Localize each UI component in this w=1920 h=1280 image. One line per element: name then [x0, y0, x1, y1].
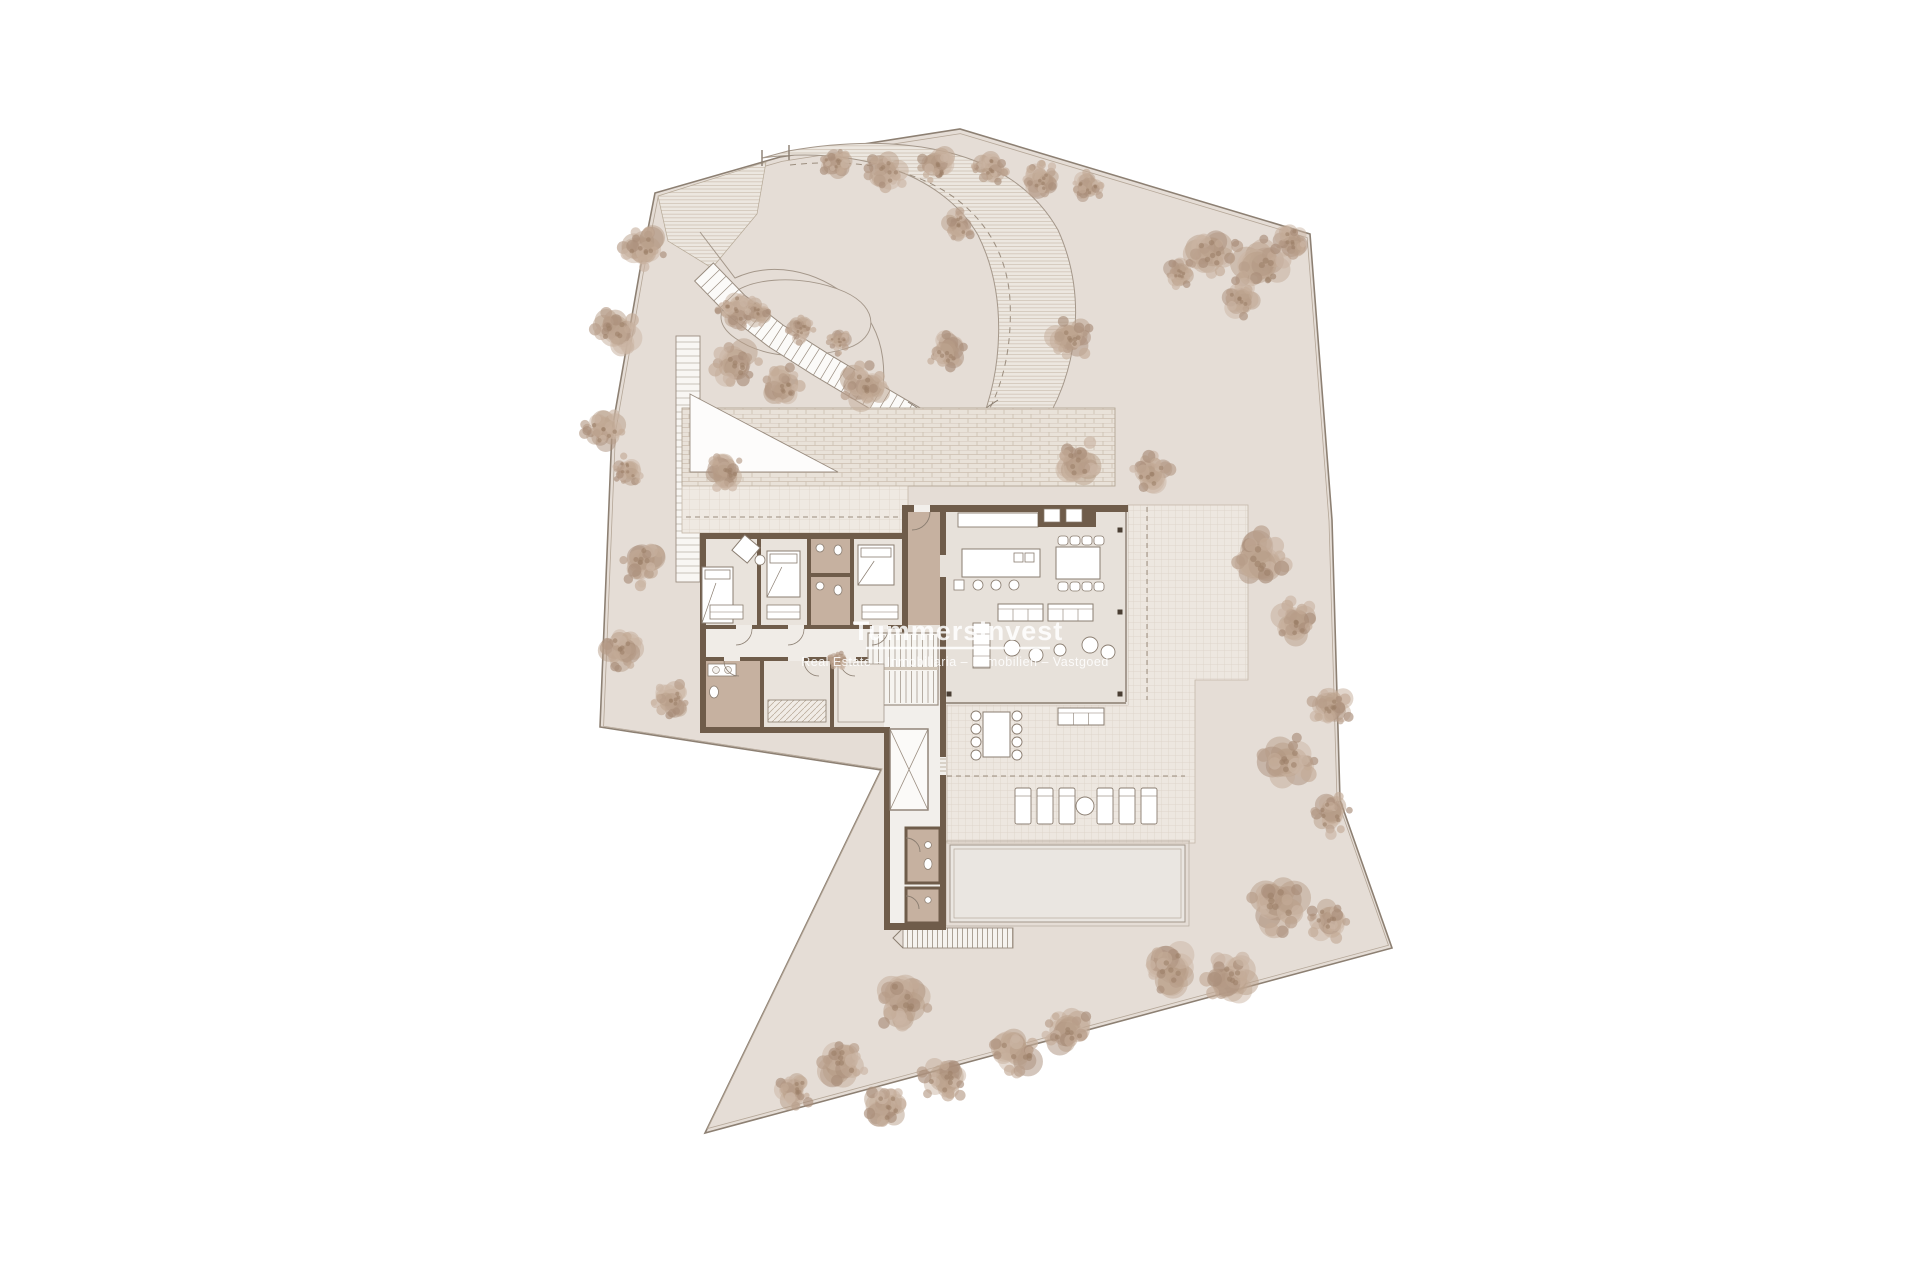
watermark-brand-text: TummersInvest — [853, 616, 1064, 646]
site-plan-page: TummersInvest Real Estate – Inmobiliaria… — [0, 0, 1920, 1280]
watermark-tagline-text: Real Estate – Inmobiliaria – Immobilien … — [801, 655, 1109, 669]
tree — [589, 307, 642, 356]
tree — [864, 1087, 907, 1127]
site-plan-drawing: TummersInvest Real Estate – Inmobiliaria… — [0, 0, 1920, 1280]
